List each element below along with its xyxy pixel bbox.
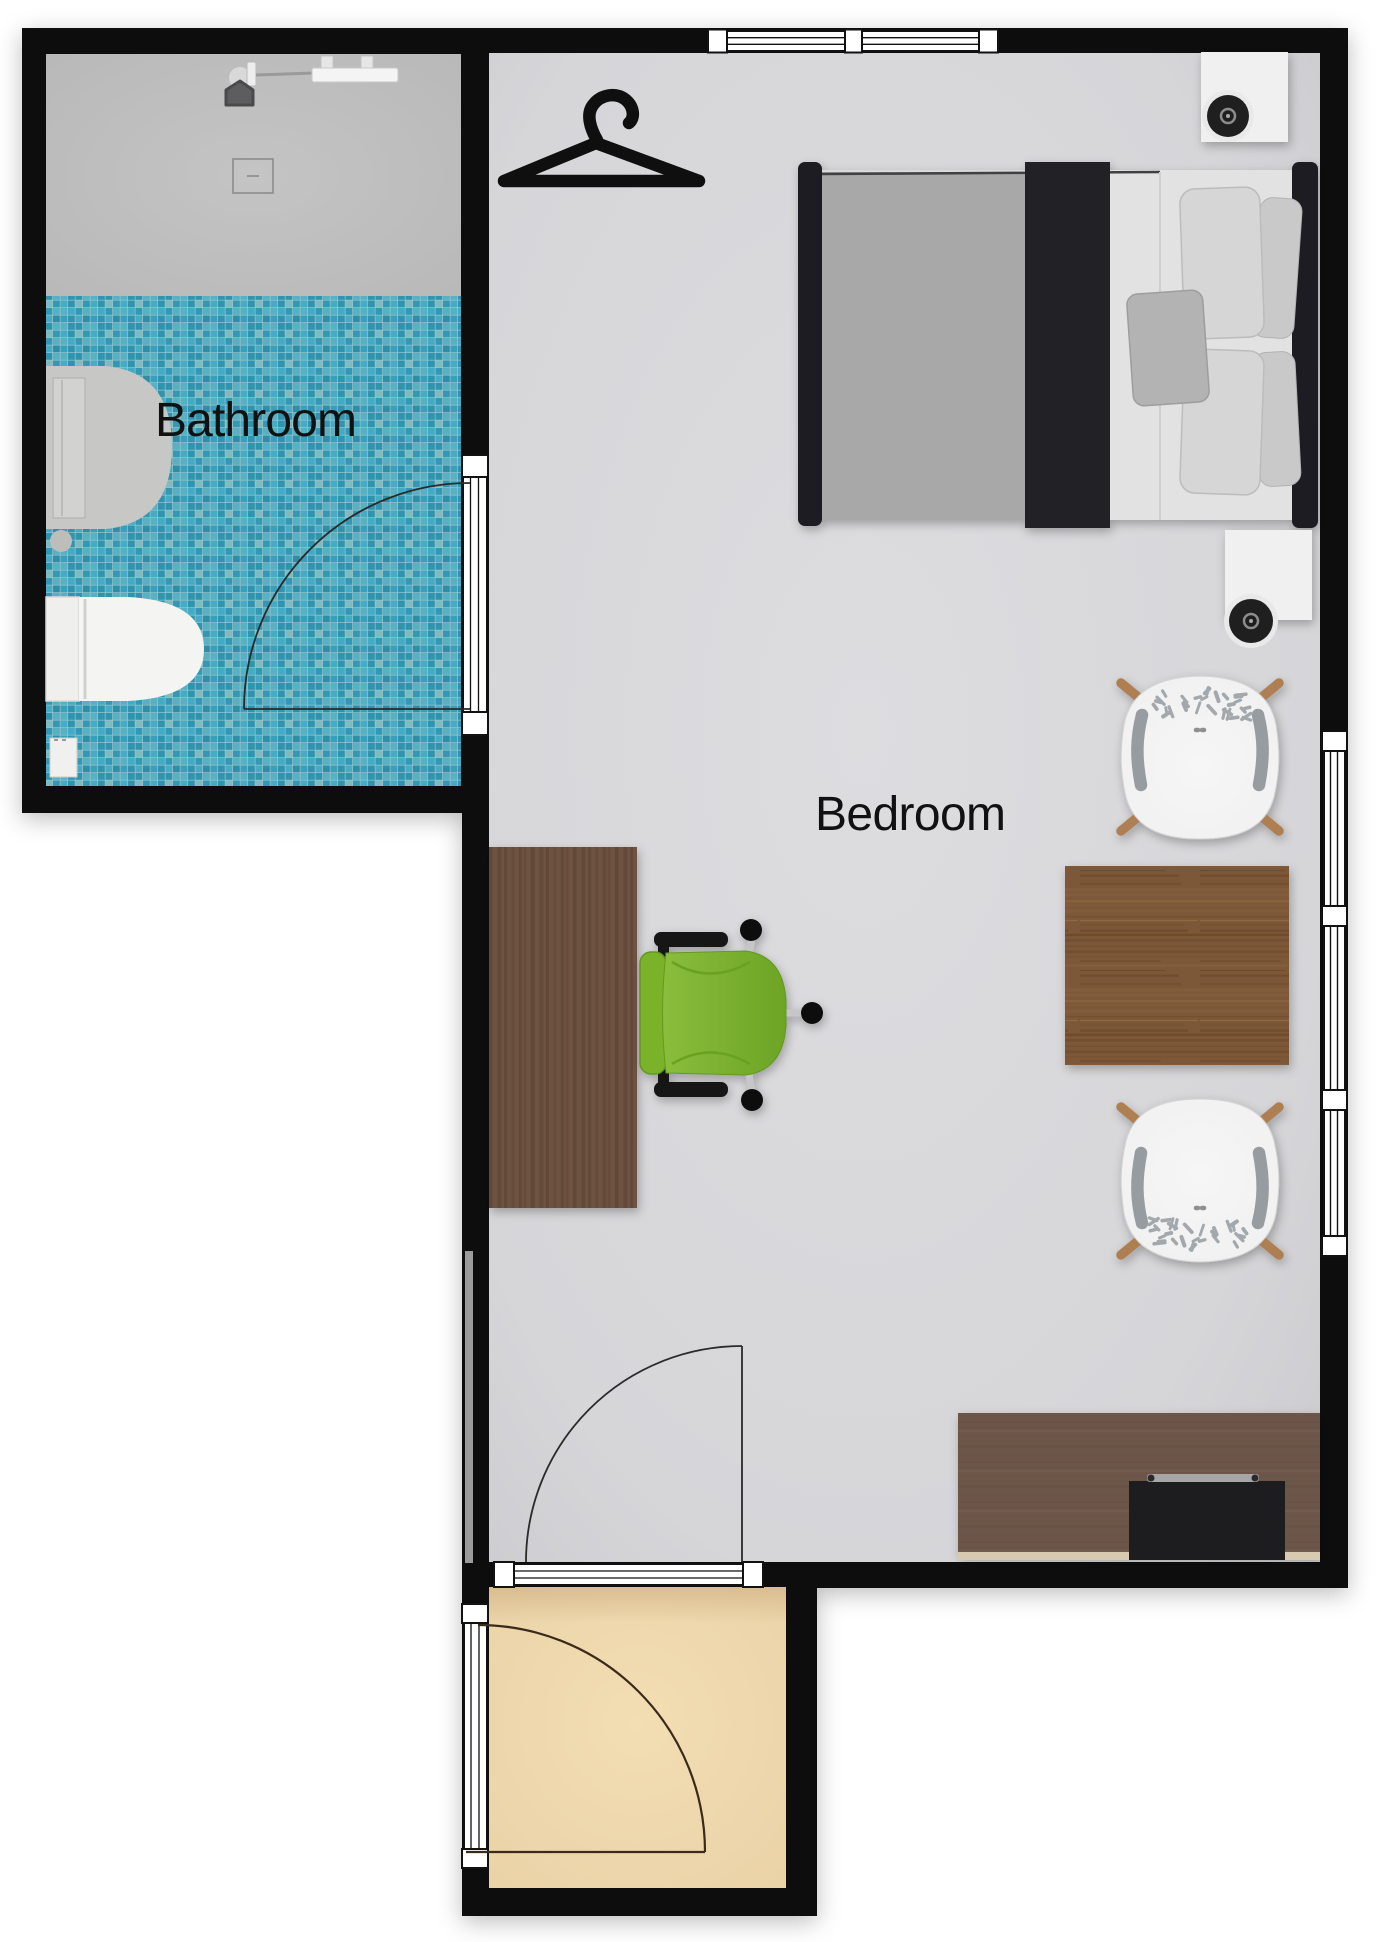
svg-text:Bedroom: Bedroom — [815, 788, 1006, 841]
svg-text:Bathroom: Bathroom — [155, 394, 357, 447]
